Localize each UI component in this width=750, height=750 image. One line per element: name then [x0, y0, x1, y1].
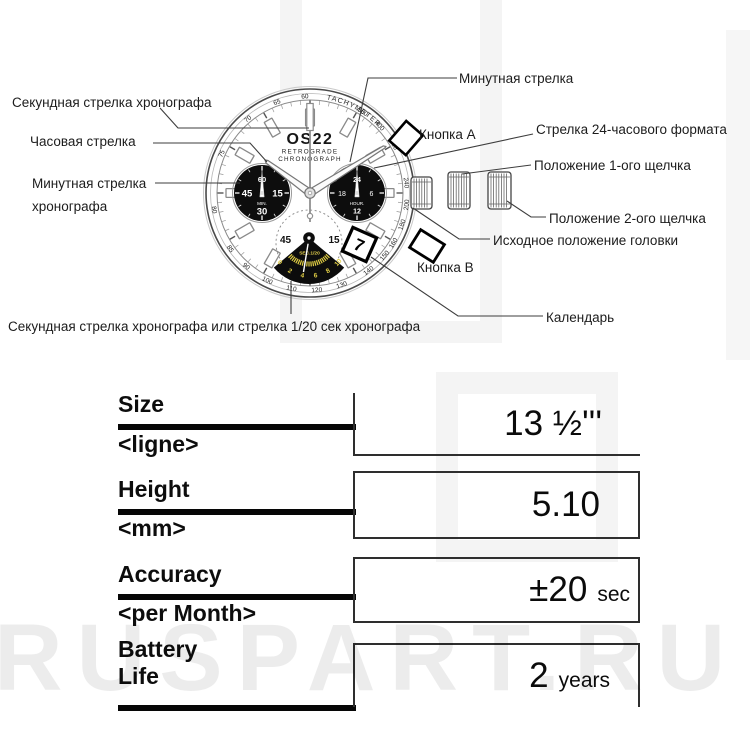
svg-text:240: 240 — [402, 177, 410, 189]
label-chrono-minute-1: Минутная стрелка — [32, 176, 146, 192]
subdial-sec-label: SEC.1/20 — [299, 251, 320, 257]
label-chrono-sec-or-120: Секундная стрелка хронографа или стрелка… — [8, 319, 420, 335]
subdial-min-30: 30 — [257, 207, 268, 218]
subdial-min-45: 45 — [242, 189, 253, 200]
subdial-min-15: 15 — [272, 189, 283, 200]
svg-text:60: 60 — [301, 93, 309, 100]
label-24h-hand: Стрелка 24-часового формата — [536, 122, 727, 138]
label-crown-home: Исходное положение головки — [493, 233, 678, 249]
label-click-pos-2: Положение 2-ого щелчка — [549, 211, 706, 227]
crown — [448, 172, 470, 209]
label-hour-hand: Часовая стрелка — [30, 134, 136, 150]
watch-movement-diagram: 6050040030024020018016015014013012011010… — [0, 0, 750, 750]
button-b — [410, 230, 445, 263]
page: 6050040030024020018016015014013012011010… — [0, 0, 750, 750]
label-button-b: Кнопка B — [417, 260, 474, 276]
subdial-sec-15: 15 — [328, 235, 340, 246]
label-button-a: Кнопка A — [419, 127, 476, 143]
svg-text:120: 120 — [311, 287, 323, 295]
label-calendar: Календарь — [546, 310, 614, 326]
label-chrono-minute-2: хронографа — [32, 199, 107, 215]
label-click-pos-1: Положение 1-ого щелчка — [534, 158, 691, 174]
subdial-sec-45: 45 — [280, 235, 292, 246]
subdial-hour-label: HOUR. — [350, 201, 365, 206]
crown — [488, 172, 511, 209]
label-minute-hand: Минутная стрелка — [459, 71, 573, 87]
subdial-min-label: MIN. — [257, 201, 267, 206]
svg-text:200: 200 — [403, 199, 411, 211]
subdial-hour-18: 18 — [338, 191, 346, 198]
subdial-hour-6: 6 — [370, 191, 374, 198]
subdial-hour-12: 12 — [353, 209, 361, 216]
crown — [411, 177, 432, 209]
label-chrono-seconds: Секундная стрелка хронографа — [12, 95, 212, 111]
